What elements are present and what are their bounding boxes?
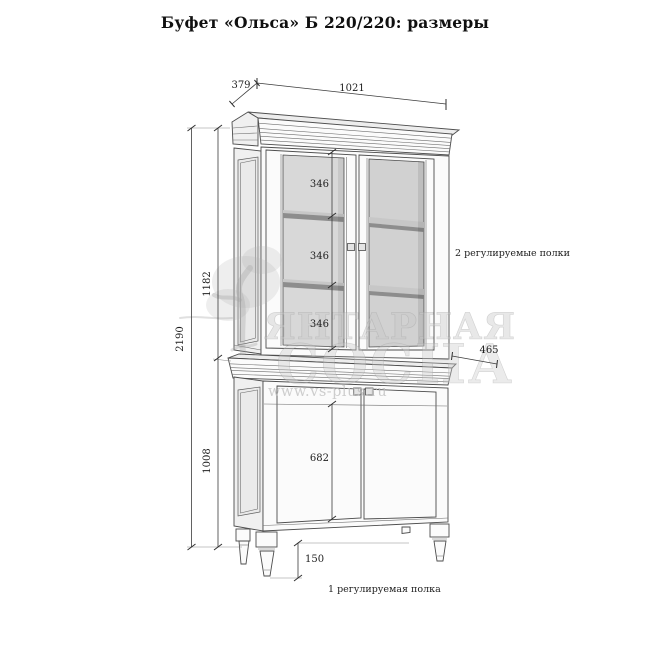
leg-back-left bbox=[236, 529, 250, 564]
lower-section bbox=[234, 377, 448, 534]
buffet-diagram: ЯНТАРНАЯ СОСНА www.vs-plus.ru 379 1021 2… bbox=[0, 0, 650, 650]
dim-lower-depth: 465 bbox=[479, 345, 498, 356]
lower-door-right bbox=[364, 389, 436, 519]
dim-upper-section-height: 1182 bbox=[202, 271, 213, 296]
dim-lower-door-height: 682 bbox=[310, 453, 329, 464]
dim-lower-section-height: 1008 bbox=[202, 448, 213, 473]
watermark-url: www.vs-plus.ru bbox=[268, 384, 387, 400]
upper-door-knob-left bbox=[348, 244, 355, 251]
dim-total-height: 2190 bbox=[175, 326, 186, 351]
dimension-drawing-page: Буфет «Ольса» Б 220/220: размеры bbox=[0, 0, 650, 650]
dim-top-width: 1021 bbox=[339, 83, 364, 94]
note-upper-shelves: 2 регулируемые полки bbox=[455, 248, 570, 259]
cornice-left-cap bbox=[232, 112, 258, 146]
dim-shelf-section-1: 346 bbox=[310, 179, 329, 190]
leg-front-left bbox=[256, 532, 277, 576]
dim-leg-height: 150 bbox=[305, 554, 324, 565]
note-lower-shelf: 1 регулируемая полка bbox=[328, 584, 441, 595]
center-support-bracket bbox=[402, 527, 410, 534]
upper-door-knob-right bbox=[359, 244, 366, 251]
lower-side-recessed-panel bbox=[238, 387, 260, 516]
dim-shelf-section-2: 346 bbox=[310, 251, 329, 262]
dim-shelf-section-3: 346 bbox=[310, 319, 329, 330]
dim-top-depth: 379 bbox=[231, 80, 250, 91]
legs bbox=[236, 524, 449, 576]
leg-front-right bbox=[430, 524, 449, 561]
